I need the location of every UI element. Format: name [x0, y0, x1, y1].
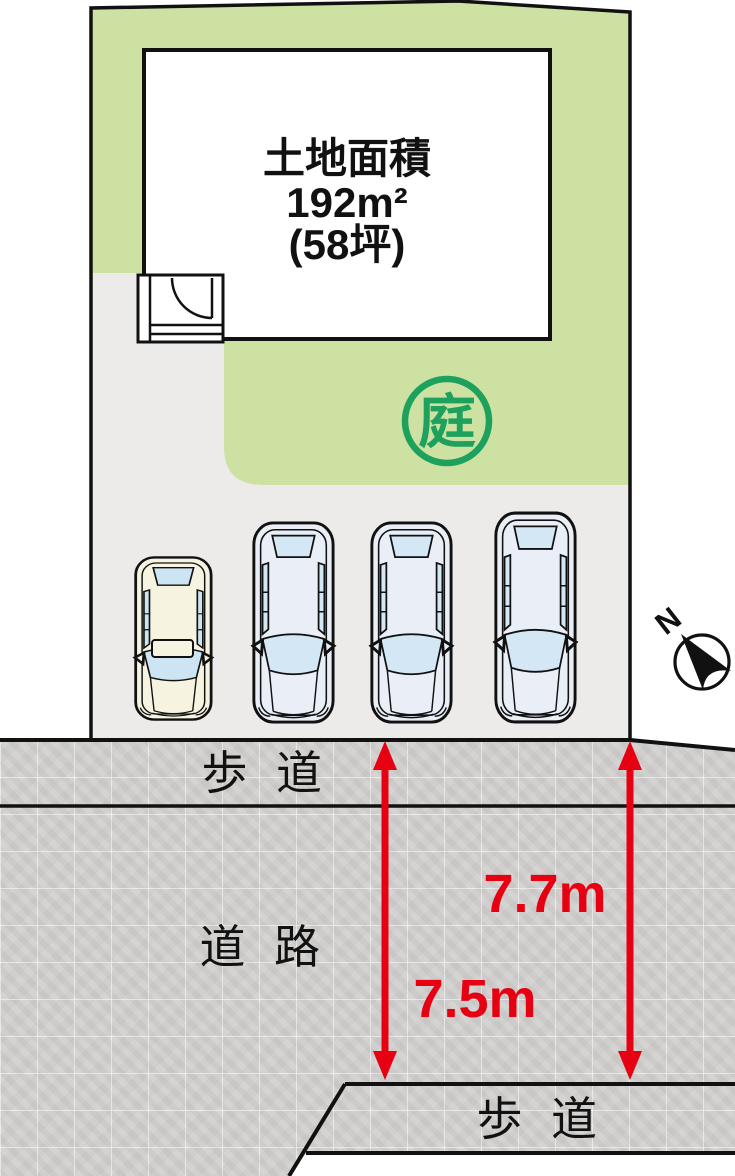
land-area-sqm: 192m² — [286, 179, 407, 226]
car-icon — [253, 523, 334, 722]
land-area-title: 土地面積 — [263, 135, 431, 182]
garden-badge-label: 庭 — [418, 390, 476, 455]
upper-sidewalk-label: 歩道 — [201, 747, 350, 799]
site-plan-diagram: 土地面積 192m² (58坪) 庭 歩道 道路 歩道 — [0, 0, 735, 1176]
car-icon — [135, 557, 212, 719]
lower-sidewalk-label: 歩道 — [476, 1093, 625, 1145]
dimension-value-left: 7.5m — [413, 969, 536, 1029]
car-icon — [371, 523, 452, 722]
lower-sidewalk-edge-line — [289, 1084, 345, 1176]
site-plan-drawing: 土地面積 192m² (58坪) 庭 歩道 道路 歩道 — [0, 0, 735, 1176]
road-label: 道路 — [199, 921, 348, 973]
compass-icon: N — [648, 600, 731, 690]
car-sunroof — [152, 640, 193, 657]
dimension-arrow-right — [618, 741, 642, 1080]
car-icon — [495, 513, 576, 722]
entrance-door-icon — [138, 275, 223, 342]
land-area-tsubo: (58坪) — [289, 221, 406, 268]
dimension-value-right: 7.7m — [483, 864, 606, 924]
upper-sidewalk-top-line — [0, 740, 735, 750]
dimension-arrow-left — [373, 741, 397, 1080]
